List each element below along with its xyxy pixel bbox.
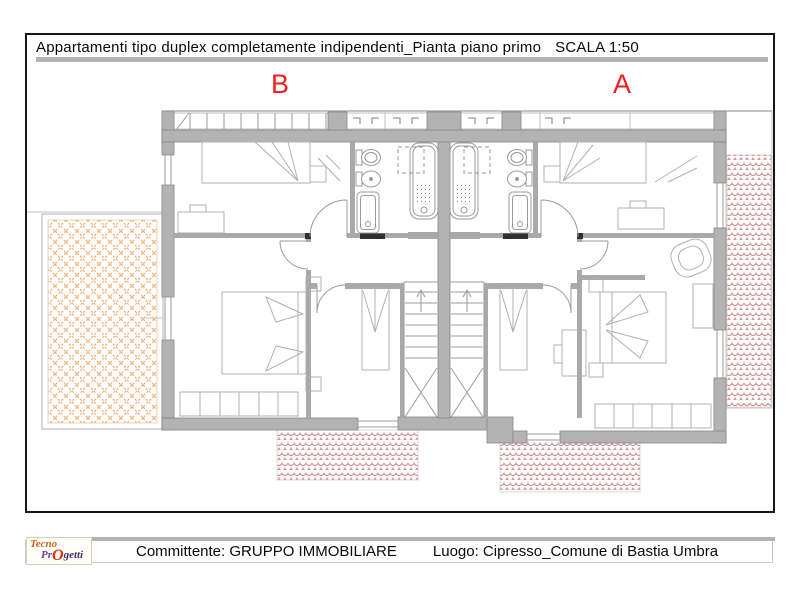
- pillar: [328, 112, 347, 130]
- balcony-right: [726, 111, 772, 408]
- door-room-a3: [543, 285, 571, 313]
- door-bedroom-a2: [580, 241, 608, 269]
- bed-a1: [560, 142, 646, 183]
- terrace-left: [42, 214, 163, 429]
- bed-b2: [222, 292, 306, 374]
- railing-lines: [177, 113, 326, 129]
- toilet-icon: [362, 150, 381, 166]
- window-bracket-icons: [353, 118, 571, 124]
- title-scale: SCALA 1:50: [555, 39, 639, 56]
- canopy-hatch-right: [500, 440, 640, 492]
- footer-location: Luogo: Cipresso_Comune di Bastia Umbra: [433, 543, 718, 560]
- corner-closet-lines: [655, 156, 697, 182]
- party-wall: [438, 142, 450, 418]
- balcony-right-hatch: [727, 155, 771, 407]
- door-bedroom-a1: [541, 200, 578, 237]
- apartment-a-label: A: [613, 69, 631, 100]
- bathtub-icon: [450, 143, 478, 219]
- window-left-top: [165, 155, 171, 185]
- desk-chair: [190, 205, 206, 212]
- closet-a2: [693, 284, 713, 328]
- stairs-b: [404, 282, 438, 418]
- window-right-top: [717, 183, 723, 228]
- tecnoprogetti-logo: Tecno PrOgetti: [26, 537, 92, 565]
- floor-plan: [0, 0, 800, 595]
- desk-chair: [554, 345, 562, 363]
- terrace-door-left: [165, 297, 171, 340]
- stair-up-arrow: [463, 290, 471, 312]
- drawing-title: Appartamenti tipo duplex completamente i…: [36, 39, 639, 56]
- nightstand: [589, 278, 603, 292]
- stair-up-arrow: [417, 290, 425, 312]
- pillow-fan: [563, 142, 600, 181]
- pillow-fan: [501, 289, 526, 332]
- window-bottom-a: [527, 434, 560, 440]
- title-main: Appartamenti tipo duplex completamente i…: [36, 39, 541, 56]
- nightstand: [544, 166, 560, 182]
- logo-letter-o: O: [52, 547, 64, 564]
- pillow-fan: [363, 289, 388, 332]
- footer-accent-bar: [90, 537, 775, 541]
- door-bedroom-b2: [280, 241, 308, 269]
- toilet-icon: [508, 150, 527, 166]
- logo-line2: PrOgetti: [41, 547, 83, 565]
- desk-chair: [630, 201, 646, 208]
- bathroom-a: [450, 143, 532, 233]
- window-right-bottom: [717, 330, 723, 378]
- pillar: [502, 112, 521, 130]
- pillar: [427, 112, 461, 130]
- wardrobe-a2: [595, 404, 711, 428]
- desk-a1: [618, 208, 664, 229]
- window-bottom-b: [358, 421, 398, 427]
- desk-a3: [562, 330, 586, 376]
- terrace-left-hatch: [48, 220, 157, 423]
- armchair-icon: [667, 235, 715, 281]
- pillow-fan: [255, 142, 298, 181]
- door-bedroom-b1: [310, 200, 347, 237]
- canopy-hatch-left: [277, 430, 418, 480]
- stairs-a: [450, 282, 484, 418]
- corner-closet-lines: [318, 155, 340, 181]
- bathroom-b: [356, 143, 438, 233]
- bathtub-icon: [410, 143, 438, 219]
- desk-b1: [178, 212, 224, 233]
- footer-client: Committente: GRUPPO IMMOBILIARE: [136, 543, 397, 560]
- apartment-b-label: B: [271, 69, 289, 100]
- nightstand: [589, 363, 603, 377]
- title-underline-bar: [36, 57, 768, 62]
- footer-bar: Committente: GRUPPO IMMOBILIARE Luogo: C…: [25, 540, 773, 563]
- loggia-band: [162, 111, 772, 130]
- pillow-fan: [266, 297, 303, 371]
- nightstand: [310, 166, 326, 182]
